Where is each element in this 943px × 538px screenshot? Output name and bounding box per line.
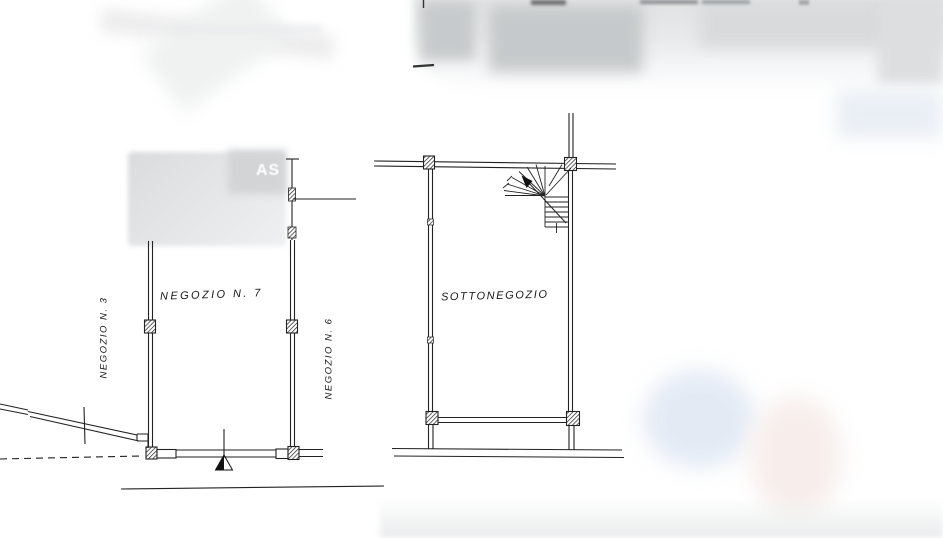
pillar [567, 412, 580, 426]
storefront-line [28, 412, 139, 442]
staircase [503, 165, 571, 234]
pillar [287, 320, 298, 333]
scan-marks [413, 0, 434, 67]
wall-line [291, 240, 295, 448]
door-opening [157, 450, 176, 459]
street-lines [392, 449, 624, 458]
wall-line [429, 425, 434, 449]
stair-treads [545, 197, 569, 222]
pillar [426, 412, 438, 425]
wall-joint [428, 337, 434, 343]
dashed-boundary-line [0, 456, 141, 459]
shopfront-line [176, 450, 277, 457]
scan-dash [413, 65, 434, 67]
wall-joint [428, 219, 434, 225]
floor-plan-drawing [0, 0, 943, 538]
wall-line [569, 171, 573, 413]
pillar [288, 447, 299, 460]
shopfront-line [438, 418, 567, 423]
storefront-segment [0, 404, 28, 415]
wall-line [149, 241, 153, 447]
label-negozio-3: NEGOZIO N. 3 [99, 292, 110, 384]
wall-line [429, 169, 433, 412]
wall-line [374, 161, 616, 169]
stair-direction-arrow-icon [522, 176, 567, 224]
wall-line [299, 450, 323, 457]
wall-line [569, 426, 574, 450]
label-negozio-6: NEGOZIO N. 6 [324, 313, 335, 405]
tread-ticks [503, 176, 512, 188]
ground-line [121, 486, 384, 489]
door-opening [276, 449, 288, 459]
mullion-tick [84, 407, 85, 444]
wall-jog [137, 434, 148, 448]
wall-line [569, 113, 573, 159]
scanned-floorplan-page: AS [0, 0, 943, 538]
pillar [424, 156, 435, 169]
right-unit-outline [374, 113, 624, 458]
pillar [145, 320, 156, 333]
wall-joint [288, 227, 296, 238]
pillar [146, 447, 157, 459]
